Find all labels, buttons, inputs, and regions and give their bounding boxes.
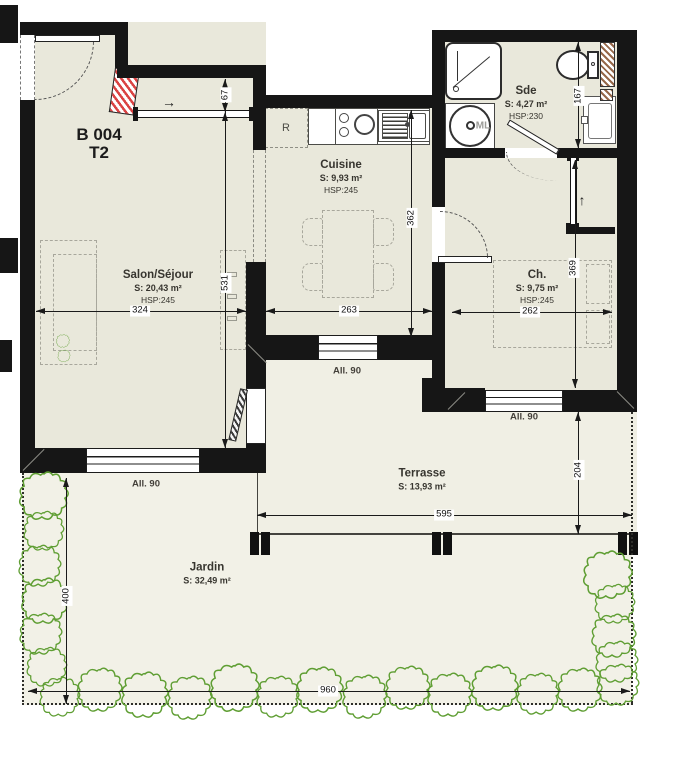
room-area: S: 4,27 m² [505,99,548,111]
sliding-door-stop [133,107,138,121]
room-label-sde: Sde S: 4,27 m² HSP:230 [505,84,548,122]
wall-stub [0,340,12,372]
window-sill-label: All. 90 [333,366,361,377]
dim-arrow [222,112,228,121]
room-name: Jardin [183,561,231,576]
washer-label: ML [476,121,490,132]
chair [302,218,323,246]
dim-arrow [408,328,414,337]
dim-arrow [603,309,612,315]
shower-diagonal [453,56,490,88]
room-hsp: HSP:230 [505,111,548,122]
room-hsp: HSP:245 [516,295,559,306]
wall-stub [0,5,18,43]
terrace-post [250,532,259,555]
dim-label: 324 [130,306,150,317]
wall [200,448,266,473]
entry-door-opening [20,35,35,100]
room-area: S: 20,43 m² [123,283,193,295]
dim-label: 369 [569,258,580,278]
sink-faucet [405,122,410,127]
shower-line [457,51,458,81]
dim-arrow [222,439,228,448]
wall [566,223,579,234]
wall [422,378,445,390]
wall [20,22,128,35]
wall [432,30,637,42]
dim-arrow [572,379,578,388]
dim-label: 595 [434,510,454,521]
dim-arrow [63,478,69,487]
room-label-salon: Salon/Séjour S: 20,43 m² HSP:245 [123,268,193,306]
terrace-post [618,532,627,555]
room-area: S: 13,93 m² [398,482,446,494]
terrace-post [261,532,270,555]
wall [20,100,35,473]
floor-plan: → ↑ [0,0,676,759]
toilet-button [591,62,595,66]
garden-fence-bottom [22,703,633,705]
wall [246,335,318,360]
window-sill-label: All. 90 [132,479,160,490]
pillow [586,264,610,304]
wall [117,65,266,78]
sliding-door-stop [249,107,254,121]
unit-type: T2 [76,144,121,162]
window-bedroom [485,390,563,412]
dim-label: 531 [221,273,232,293]
toilet-bowl [556,50,590,80]
room-hsp: HSP:245 [123,295,193,306]
dim-arrow [623,512,632,518]
garden-fence-right [631,412,633,703]
fridge-label: R [282,122,290,134]
room-area: S: 9,93 m² [320,173,363,185]
tv-unit-mark [227,316,237,321]
room-hsp: HSP:245 [320,185,363,196]
vanity-basin [588,103,612,139]
garden-fence-left [22,473,24,705]
wall [253,67,266,150]
dim-arrow [575,139,581,148]
shower-drain [453,86,459,92]
dim-arrow [575,412,581,421]
dim-label: 960 [318,686,338,697]
tv-unit-mark [227,294,237,299]
pillow [586,310,610,344]
dim-arrow [237,308,246,314]
wall [246,262,266,388]
wall [422,388,485,412]
wall [115,33,128,67]
chair [302,263,323,291]
room-area: S: 32,49 m² [183,576,231,588]
terrace-edge [257,473,258,533]
chair [373,263,394,291]
wall [432,33,445,207]
dim-arrow [452,309,461,315]
terrace-door-opening [246,388,266,444]
stove-burner [339,113,349,123]
dim-label: 167 [574,86,585,106]
room-label-cuisine: Cuisine S: 9,93 m² HSP:245 [320,158,363,196]
dim-arrow [28,688,37,694]
stove-burner [354,114,375,135]
dim-arrow [63,695,69,704]
dim-label: 262 [520,307,540,318]
dim-label: 67 [221,88,232,103]
room-label-terrasse: Terrasse S: 13,93 m² [398,467,446,494]
window-cuisine [318,335,378,360]
terrace-post [432,532,441,555]
dim-arrow [266,308,275,314]
entry-closet-sliding-door [137,110,249,118]
tv-unit [220,250,246,350]
wall [557,148,617,158]
entry-direction-arrow: → [162,95,176,109]
stove-burner [339,127,349,137]
dim-label: 263 [339,306,359,317]
chair [373,218,394,246]
closet-direction-arrow: ↑ [579,193,586,207]
sofa-seat [53,254,97,351]
dim-arrow [36,308,45,314]
window-sill-label: All. 90 [510,412,538,423]
wall [266,95,445,108]
dim-arrow [423,308,432,314]
salon-kitchen-passage [253,150,266,262]
wall [617,30,637,412]
room-name: Ch. [516,268,559,283]
vanity-faucet [581,116,588,124]
dim-arrow [572,160,578,169]
dim-label: 400 [62,586,73,606]
room-name: Salon/Séjour [123,268,193,283]
room-name: Cuisine [320,158,363,173]
dim-arrow [257,512,266,518]
dim-arrow [222,79,228,88]
wall [432,148,505,158]
unit-label: B 004 T2 [76,126,121,162]
terrace-post [443,532,452,555]
room-label-jardin: Jardin S: 32,49 m² [183,561,231,588]
duct-brown [600,42,615,87]
room-name: Terrasse [398,467,446,482]
room-name: Sde [505,84,548,99]
wall [378,335,445,360]
washing-machine-hub [466,121,475,130]
dining-table [322,210,374,298]
sink-drainboard [382,113,408,139]
dim-label: 362 [407,208,418,228]
window-salon [86,448,200,473]
duct-brown [600,89,613,101]
dim-arrow [575,42,581,51]
dim-arrow [621,688,630,694]
shower [445,42,502,100]
wall [20,448,86,473]
room-label-chambre: Ch. S: 9,75 m² HSP:245 [516,268,559,306]
room-area: S: 9,75 m² [516,283,559,295]
wall-stub [0,238,18,273]
dim-arrow [222,103,228,112]
dim-label: 204 [574,460,585,480]
unit-code: B 004 [76,126,121,144]
dim-arrow [575,525,581,534]
dim-arrow [408,110,414,119]
